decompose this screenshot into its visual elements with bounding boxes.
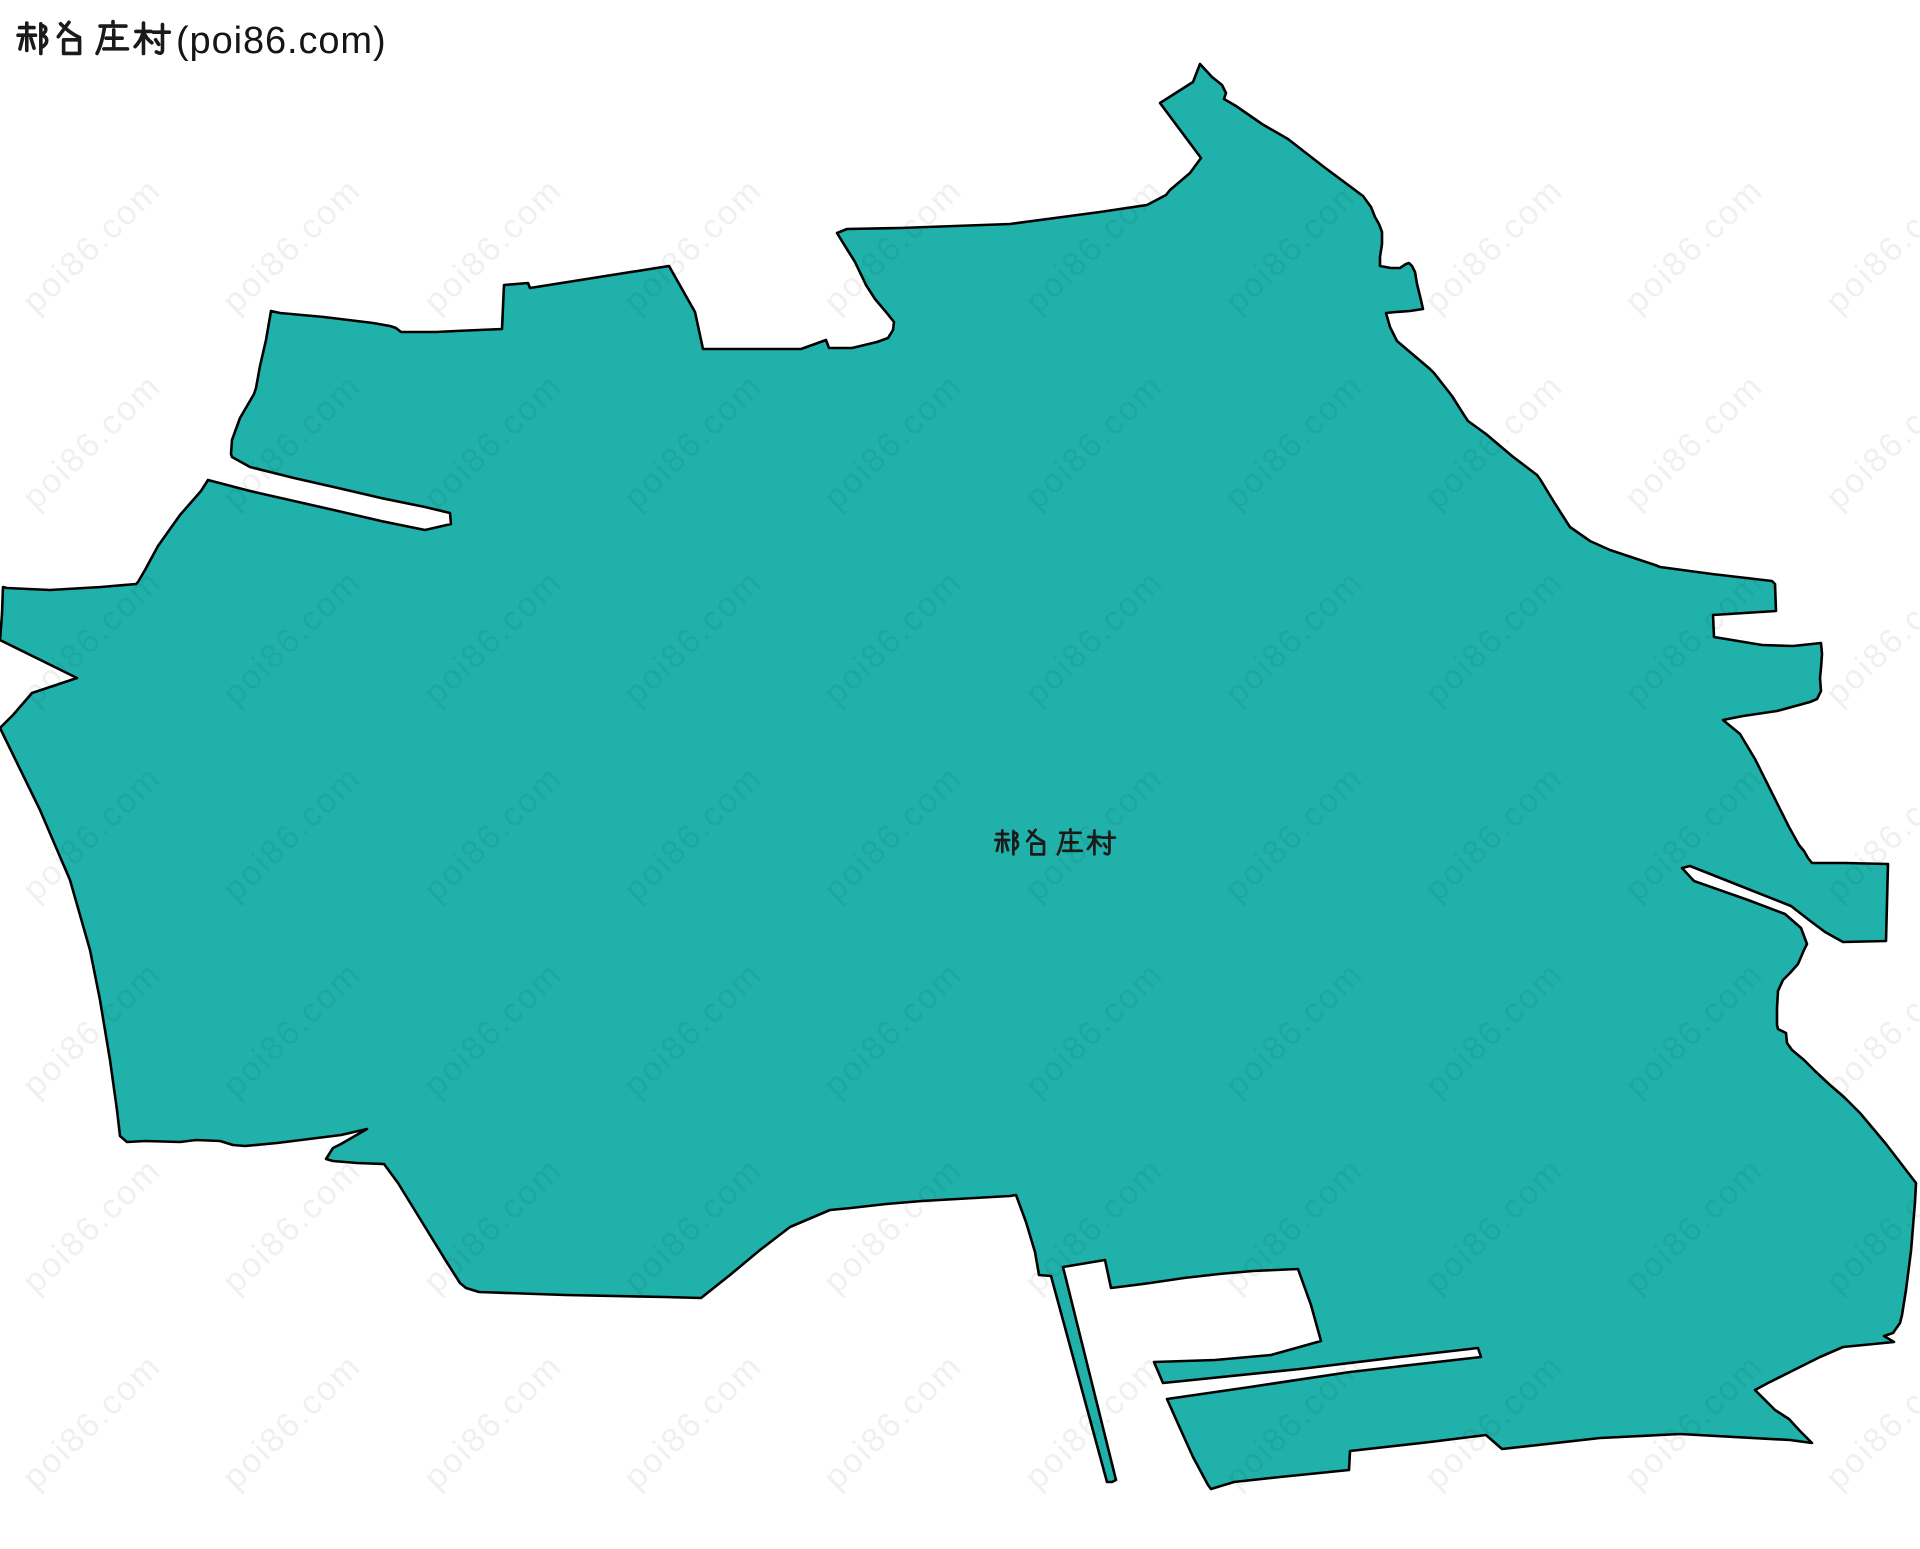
svg-text:(poi86.com): (poi86.com) xyxy=(176,20,387,62)
